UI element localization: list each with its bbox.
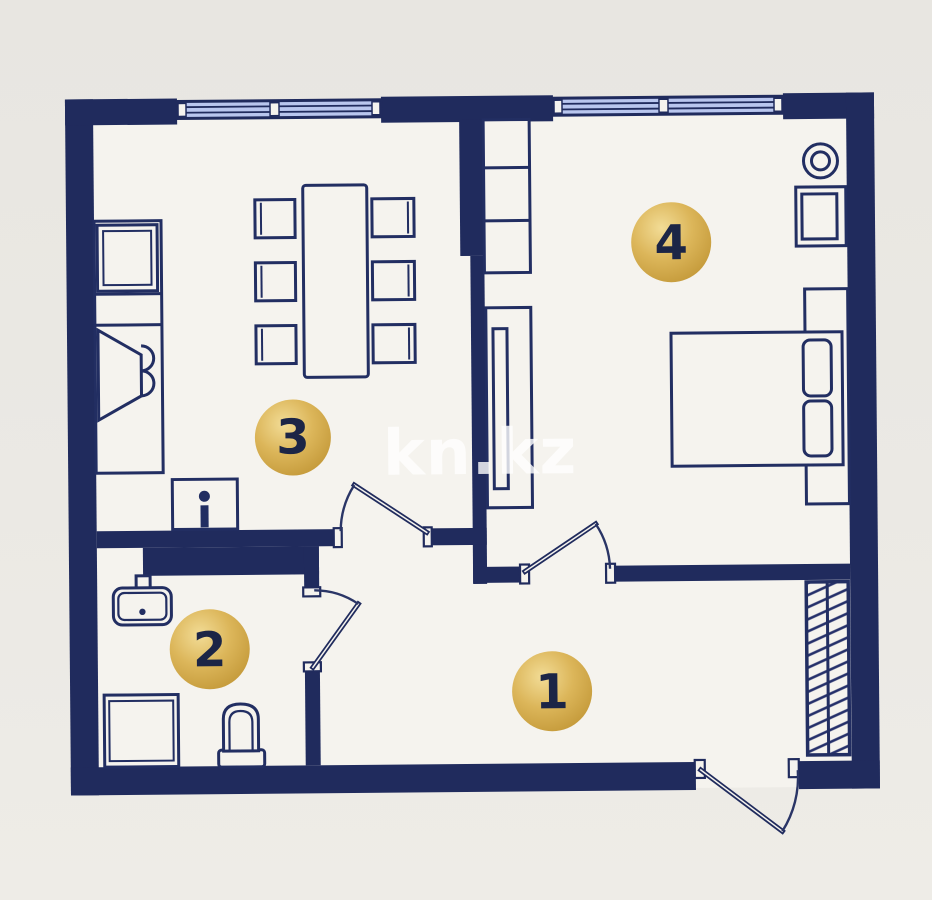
wall-bathroom-right-lower — [305, 669, 321, 765]
wall-hall-room4-right — [607, 564, 850, 582]
fridge — [97, 225, 158, 292]
window-mullion — [774, 98, 782, 111]
pillow — [803, 340, 831, 396]
floorplan-photo: 1 2 3 4 kn.kz — [0, 0, 932, 900]
shelf-unit — [483, 119, 530, 272]
dining-set — [255, 184, 416, 377]
room-marker-4: 4 — [631, 202, 712, 283]
window-mullion — [372, 102, 380, 115]
counter-divider — [95, 325, 162, 326]
wall-central-thick — [459, 120, 484, 256]
washing-machine — [172, 479, 237, 530]
washing-machine-knob — [199, 491, 210, 502]
door-jamb — [303, 587, 320, 596]
room-marker-1: 1 — [512, 651, 593, 732]
room-marker-2: 2 — [169, 609, 250, 690]
counter-divider — [95, 294, 162, 295]
sink-drain — [139, 609, 145, 615]
window-right — [553, 96, 783, 115]
wall-bathroom-right-upper — [304, 546, 319, 591]
ceiling-lamp-icon — [803, 144, 837, 178]
room-number: 2 — [193, 622, 227, 678]
wall-room3-bottom-right — [425, 528, 487, 546]
hall-closet — [806, 582, 850, 755]
wall-bottom-right — [799, 760, 880, 789]
window-mullion — [659, 99, 668, 112]
wall-bathroom-top — [143, 546, 319, 576]
window-mullion — [178, 103, 186, 116]
watermark: kn.kz — [383, 415, 578, 490]
room-number: 1 — [535, 664, 569, 720]
dining-table — [303, 185, 369, 378]
window-mullion — [554, 100, 562, 113]
kitchen-counter — [94, 221, 163, 474]
pillow — [804, 401, 832, 456]
window-left — [177, 100, 381, 119]
room-marker-3: 3 — [255, 399, 332, 476]
closet-center-line — [827, 582, 829, 755]
shower-tray — [104, 695, 179, 768]
wall-top-left — [65, 99, 177, 126]
room-number: 4 — [654, 215, 688, 271]
washing-machine-handle — [200, 505, 208, 527]
floorplan-drawing: 1 2 3 4 kn.kz — [0, 0, 932, 900]
window-mullion — [270, 103, 279, 116]
room-number: 3 — [276, 409, 310, 465]
wall-room3-bottom-left — [97, 529, 339, 548]
